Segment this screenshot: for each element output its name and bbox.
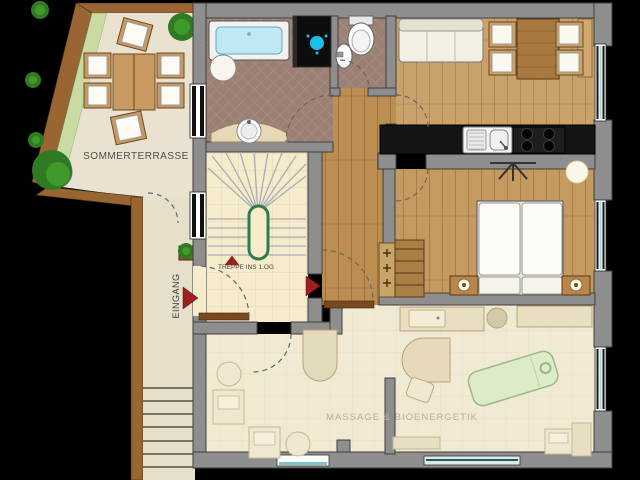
- floor-plan-drawing: [0, 0, 640, 480]
- wall-right-3: [594, 271, 612, 347]
- shower-spray-dot: [316, 52, 319, 55]
- floor-plan: SOMMERTERRASSE EINGANG TREPPE INS 1.OG M…: [0, 0, 640, 480]
- dining-chair-2: [489, 50, 516, 75]
- plant-icon: [32, 136, 40, 144]
- wall-waiting-top-1: [193, 322, 257, 334]
- entrance-walkway: [131, 197, 195, 480]
- wall-stairhall-hall-1: [308, 152, 322, 274]
- bathtub-drain-icon: [247, 32, 251, 36]
- corner-side-table: [572, 423, 591, 456]
- walkway-floor: [143, 197, 195, 480]
- wc-sink-tap-icon: [337, 52, 343, 57]
- stair-handrail: [249, 206, 268, 259]
- dining-chair-1: [489, 22, 516, 47]
- bed-foot-left: [479, 277, 520, 294]
- wall-stairhall-hall-2: [308, 298, 322, 324]
- wall-hall-bedroom: [383, 169, 395, 243]
- massage-bench: [393, 437, 440, 449]
- terrace: [25, 1, 196, 207]
- shower-head-icon: [310, 36, 324, 50]
- nightstand-lamp-icon: [462, 283, 466, 287]
- stairhall-arrow-icon: [306, 276, 320, 296]
- hall-mini-stairs: [379, 240, 424, 297]
- massage-sink: [409, 310, 445, 327]
- plant-icon: [29, 76, 37, 84]
- massage-sink-tap-icon: [437, 317, 440, 320]
- entrance-door-opening: [193, 266, 206, 316]
- wall-right-1: [594, 3, 612, 46]
- toilet-seat: [352, 30, 370, 52]
- bathtub-water: [216, 27, 282, 54]
- wall-bottom-pillar: [337, 440, 350, 452]
- window-left-bathroom: [190, 84, 206, 138]
- large-plant-icon: [46, 162, 70, 186]
- stool: [487, 308, 507, 328]
- bath-stool: [210, 55, 236, 81]
- therapist-desk: [402, 338, 450, 382]
- wall-wc-bottom-2: [368, 88, 396, 96]
- dining-chair-3: [556, 22, 583, 47]
- corner-chair: [545, 429, 572, 454]
- window-right-massage: [595, 347, 606, 411]
- waiting-side-table-1: [217, 362, 241, 386]
- vanity-basin-inner: [241, 123, 257, 139]
- nightstand-lamp-icon: [574, 283, 578, 287]
- terrace-chair-left-1: [84, 53, 111, 78]
- waiting-chair-2: [249, 427, 280, 458]
- plant-icon: [35, 5, 45, 15]
- walkway-border: [131, 197, 143, 480]
- terrace-chair-right-2: [157, 83, 184, 108]
- terrace-chair-left-2: [84, 83, 111, 108]
- sofa-backrest: [399, 19, 483, 31]
- burner-icon: [522, 129, 533, 140]
- massage-shelf: [517, 306, 592, 327]
- shower-spray-dot: [325, 35, 328, 38]
- window-right-bedroom: [595, 200, 606, 271]
- vanity-tap-icon: [247, 120, 251, 124]
- cooktop: [513, 127, 565, 153]
- window-bottom-massage: [424, 456, 520, 465]
- shower-door: [293, 16, 297, 67]
- mattress-right: [522, 203, 562, 275]
- terrace-chair-bottom: [110, 111, 146, 145]
- ceiling-lamp: [566, 161, 588, 183]
- kitchen: [380, 125, 595, 154]
- wall-kitchen-1: [378, 153, 396, 169]
- window-right-living: [595, 44, 606, 121]
- hall-massage-threshold: [324, 301, 374, 308]
- wall-bath-stairhall: [206, 142, 333, 152]
- bed-foot-right: [522, 277, 562, 294]
- walkway-plant-icon: [182, 247, 190, 255]
- wall-wc-living: [386, 16, 396, 94]
- wall-right-2: [594, 120, 612, 200]
- entrance-door-leaf: [199, 313, 249, 320]
- burner-icon: [544, 141, 555, 152]
- terrace-border-top: [76, 3, 196, 13]
- plant-icon: [174, 19, 190, 35]
- dining-table: [517, 19, 559, 79]
- window-left-stairhall: [190, 192, 206, 239]
- terrace-chair-right-1: [157, 53, 184, 78]
- waiting-chair-1: [213, 390, 244, 424]
- burner-icon: [522, 141, 533, 152]
- mattress-left: [479, 203, 520, 275]
- shower-spray-dot: [307, 35, 310, 38]
- burner-icon: [544, 129, 555, 140]
- dining-chair-4: [556, 50, 583, 75]
- waiting-side-table-2: [286, 432, 310, 456]
- reception-counter: [303, 330, 337, 381]
- wall-top: [196, 3, 612, 18]
- sink-faucet-icon: [504, 146, 508, 150]
- door-bottom-waiting: [277, 455, 329, 466]
